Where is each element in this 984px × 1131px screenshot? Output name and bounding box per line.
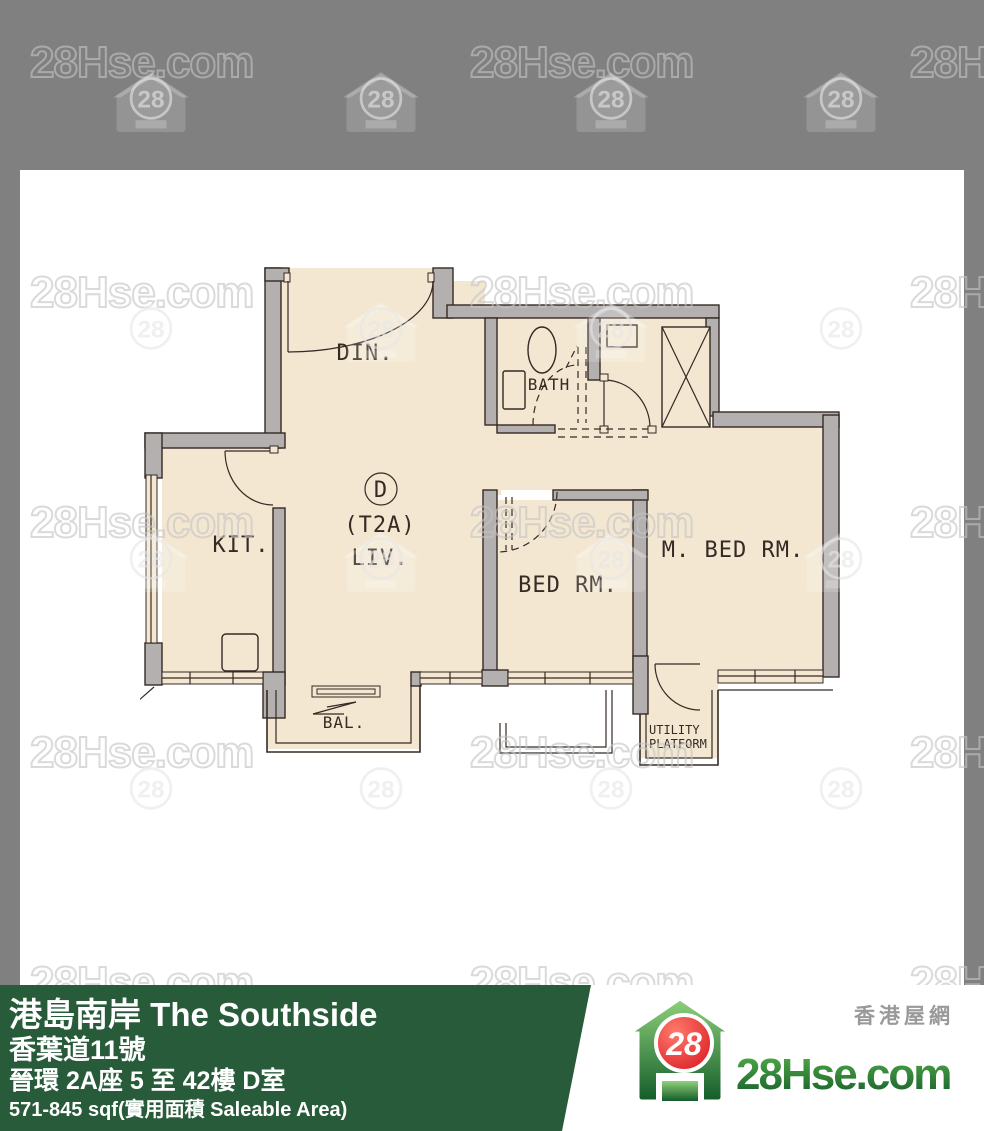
basin <box>503 371 525 409</box>
unit-label: D <box>374 478 388 503</box>
watermark-house-icon: 28 <box>802 70 880 136</box>
logo-house-icon: 28 <box>630 999 730 1101</box>
logo-tagline: 香港屋網 <box>854 1004 954 1028</box>
info-banner: 港島南岸 The Southside 香葉道11號 晉環 2A座 5 至 42樓… <box>0 985 984 1131</box>
watermark-text: 28Hse.com <box>470 38 693 88</box>
watermark-text: 28Hse.com <box>910 38 984 88</box>
site-logo: 28 28Hse.com 香港屋網 <box>618 985 958 1125</box>
room-label-balcony: BAL. <box>323 713 366 732</box>
svg-text:28: 28 <box>367 87 394 114</box>
room-label-utility-2: PLATFORM <box>649 737 707 751</box>
watermark-house-icon: 28 <box>112 70 190 136</box>
watermark-text: 28Hse.com <box>30 38 253 88</box>
exterior-ledge <box>500 690 612 753</box>
toilet <box>528 327 556 373</box>
logo-wordmark: 28Hse.com <box>736 1050 950 1099</box>
watermark-house-icon: 28 <box>572 70 650 136</box>
room-label-utility-1: UTILITY <box>649 723 700 737</box>
floorplan-page: DIN. BATH KIT. D (T2A) LIV. BED RM. M. B… <box>0 0 984 1131</box>
room-label-kitchen: KIT. <box>213 533 270 558</box>
unit-type-label: (T2A) <box>344 513 415 538</box>
room-label-master-bedroom: M. BED RM. <box>662 538 804 563</box>
room-label-bath: BATH <box>528 375 571 394</box>
cabinet <box>607 325 637 347</box>
svg-text:28: 28 <box>597 87 624 114</box>
room-label-dining: DIN. <box>337 341 394 366</box>
kitchen-sink <box>222 634 258 671</box>
unit-info: 晉環 2A座 5 至 42樓 D室 <box>9 1061 285 1097</box>
room-label-bedroom: BED RM. <box>518 573 618 598</box>
saleable-area: 571-845 sqf(實用面積 Saleable Area) <box>9 1093 347 1122</box>
logo-badge: 28 <box>665 1026 702 1062</box>
svg-text:28: 28 <box>137 87 164 114</box>
watermark-house-icon: 28 <box>342 70 420 136</box>
floorplan-drawing: DIN. BATH KIT. D (T2A) LIV. BED RM. M. B… <box>140 258 860 773</box>
room-label-living: LIV. <box>352 546 409 571</box>
svg-text:28: 28 <box>827 87 854 114</box>
